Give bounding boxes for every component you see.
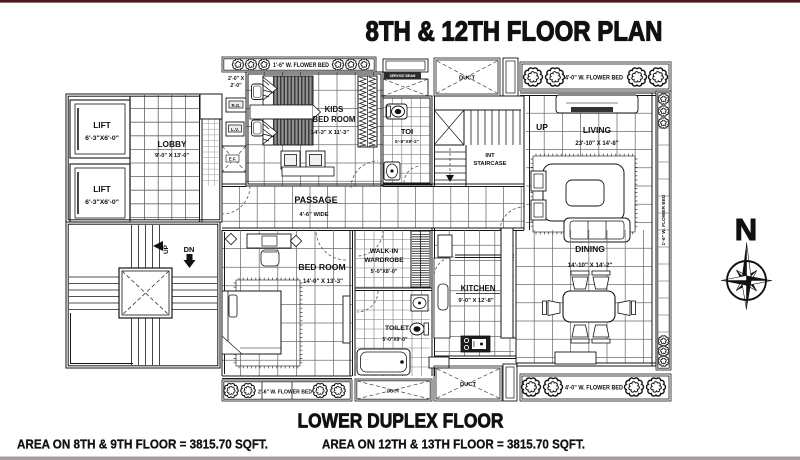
svg-text:KIDS: KIDS — [325, 105, 344, 114]
svg-text:2'-0" X: 2'-0" X — [228, 76, 245, 82]
svg-text:14'-0" X 13'-3": 14'-0" X 13'-3" — [303, 279, 343, 285]
svg-text:SERVICE BEAM: SERVICE BEAM — [390, 74, 416, 78]
svg-text:TOILET: TOILET — [385, 325, 410, 332]
svg-text:DUCT: DUCT — [459, 76, 476, 82]
svg-text:AREA ON 8TH & 9TH FLOOR = 381: AREA ON 8TH & 9TH FLOOR = 3815.70 SQFT. — [17, 437, 268, 452]
svg-text:N: N — [735, 212, 757, 247]
svg-text:LIFT: LIFT — [93, 120, 111, 130]
svg-text:14'-10" X 14'-2": 14'-10" X 14'-2" — [568, 262, 613, 269]
svg-text:2'-6" W. FLOWER BED: 2'-6" W. FLOWER BED — [258, 390, 312, 396]
svg-text:STAIRCASE: STAIRCASE — [473, 161, 506, 167]
svg-text:4'-0" W. FLOWER BED: 4'-0" W. FLOWER BED — [565, 385, 623, 392]
svg-text:1'-6" W. FLOWER BED: 1'-6" W. FLOWER BED — [661, 194, 667, 245]
svg-text:R.G.: R.G. — [231, 103, 240, 108]
svg-text:9'-0" X 13'-0": 9'-0" X 13'-0" — [155, 153, 189, 159]
svg-text:UP: UP — [536, 122, 548, 132]
svg-text:BED ROOM: BED ROOM — [298, 262, 345, 272]
svg-text:1'-6" W. FLOWER BED: 1'-6" W. FLOWER BED — [273, 62, 329, 69]
svg-text:KITCHEN: KITCHEN — [461, 284, 496, 293]
svg-text:5'-0"X9'-0": 5'-0"X9'-0" — [383, 337, 409, 343]
svg-text:DUCT: DUCT — [460, 382, 477, 388]
svg-text:4'-6" WIDE: 4'-6" WIDE — [299, 212, 328, 218]
svg-text:2'-0": 2'-0" — [230, 83, 242, 89]
svg-text:PASSAGE: PASSAGE — [294, 195, 337, 205]
svg-text:DN: DN — [184, 245, 195, 254]
svg-text:LOWER DUPLEX FLOOR: LOWER DUPLEX FLOOR — [298, 410, 504, 433]
svg-text:LIVING: LIVING — [583, 125, 612, 135]
svg-text:9'-0" X 12'-8": 9'-0" X 12'-8" — [458, 298, 494, 304]
svg-text:BED ROOM: BED ROOM — [313, 115, 356, 124]
svg-text:DUCT: DUCT — [387, 389, 400, 394]
svg-text:5'-0"X8'-0": 5'-0"X8'-0" — [371, 269, 398, 275]
svg-text:8TH & 12TH FLOOR PLAN: 8TH & 12TH FLOOR PLAN — [366, 16, 663, 47]
svg-text:TOI: TOI — [401, 127, 413, 136]
svg-text:6'-3"X6'-0": 6'-3"X6'-0" — [85, 135, 119, 142]
svg-text:14'-3" X 11'-3": 14'-3" X 11'-3" — [311, 130, 349, 136]
svg-text:WARDROBE: WARDROBE — [364, 257, 404, 264]
svg-text:5'-0"X9'-2": 5'-0"X9'-2" — [395, 139, 419, 145]
svg-text:INT: INT — [485, 153, 495, 159]
svg-text:4'-0" W. FLOWER BED: 4'-0" W. FLOWER BED — [565, 75, 623, 82]
svg-text:LOBBY: LOBBY — [157, 139, 187, 149]
svg-text:UP: UP — [163, 244, 170, 254]
svg-text:AREA ON 12TH & 13TH FLOOR = 3: AREA ON 12TH & 13TH FLOOR = 3815.70 SQFT… — [322, 437, 585, 452]
svg-text:LIFT: LIFT — [93, 184, 111, 194]
svg-text:6'-3"X6'-0": 6'-3"X6'-0" — [85, 199, 119, 206]
svg-text:23'-10" X 14'-8": 23'-10" X 14'-8" — [575, 141, 618, 147]
svg-text:L.V.: L.V. — [231, 127, 239, 132]
svg-text:DINING: DINING — [575, 244, 605, 254]
svg-text:E.F.: E.F. — [229, 157, 236, 162]
